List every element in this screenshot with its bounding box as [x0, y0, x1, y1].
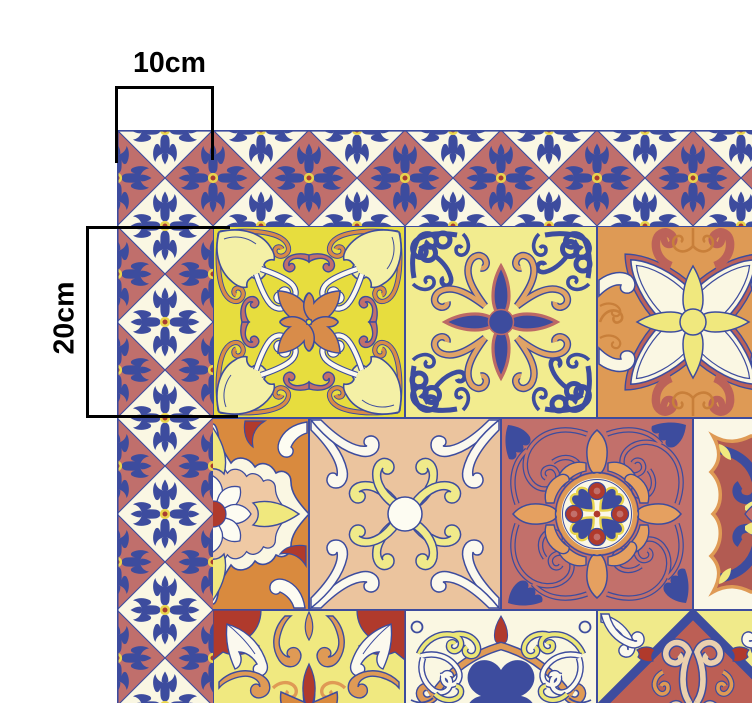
svg-text:10cm: 10cm [133, 47, 206, 79]
svg-text:20cm: 20cm [49, 282, 81, 355]
